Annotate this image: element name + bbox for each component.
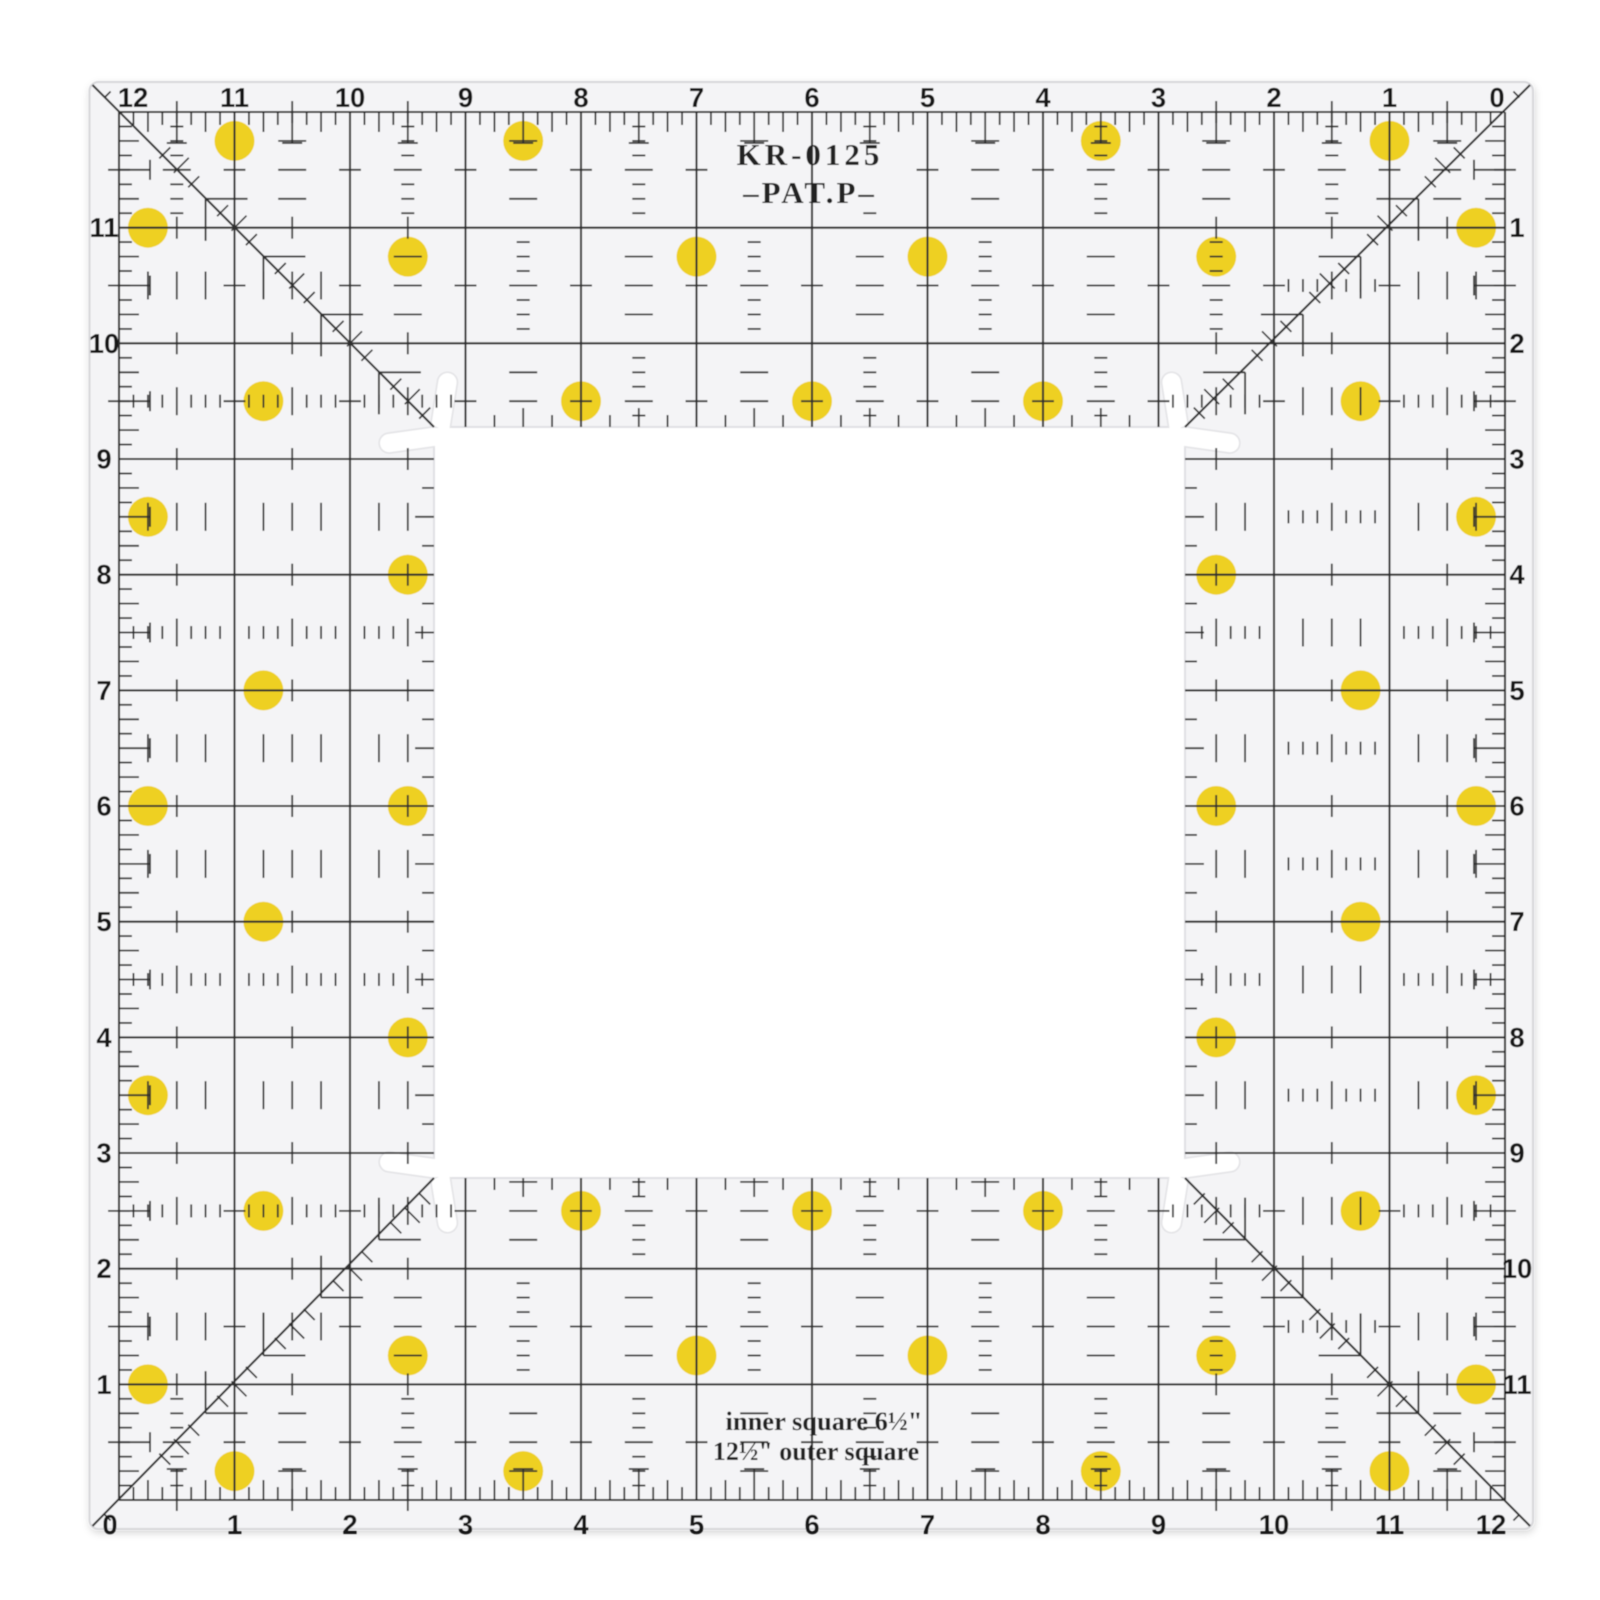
svg-text:3: 3: [96, 1138, 111, 1169]
svg-text:–PAT.P–: –PAT.P–: [742, 175, 877, 210]
svg-text:5: 5: [689, 1509, 704, 1540]
svg-text:2: 2: [1266, 82, 1281, 113]
svg-text:2: 2: [1509, 328, 1524, 359]
svg-text:8: 8: [1509, 1022, 1524, 1053]
svg-text:10: 10: [335, 82, 366, 113]
svg-text:1: 1: [1382, 82, 1397, 113]
svg-text:10: 10: [1502, 1253, 1533, 1284]
svg-text:9: 9: [1151, 1509, 1166, 1540]
svg-text:9: 9: [458, 82, 473, 113]
svg-text:4: 4: [96, 1022, 112, 1053]
svg-text:11: 11: [1375, 1509, 1404, 1540]
svg-text:2: 2: [96, 1253, 111, 1284]
svg-text:1: 1: [1509, 212, 1524, 243]
svg-text:6: 6: [804, 1509, 819, 1540]
svg-text:6: 6: [804, 82, 819, 113]
svg-text:7: 7: [1509, 906, 1524, 937]
svg-text:10: 10: [1259, 1509, 1290, 1540]
svg-text:11: 11: [1502, 1369, 1531, 1400]
svg-text:3: 3: [1151, 82, 1166, 113]
svg-text:7: 7: [689, 82, 704, 113]
svg-text:4: 4: [1509, 559, 1525, 590]
svg-text:3: 3: [458, 1509, 473, 1540]
svg-text:11: 11: [220, 82, 249, 113]
svg-text:KR-0125: KR-0125: [737, 137, 884, 172]
svg-text:8: 8: [573, 82, 588, 113]
svg-text:6: 6: [96, 791, 111, 822]
svg-text:4: 4: [573, 1509, 589, 1540]
svg-text:7: 7: [920, 1509, 935, 1540]
svg-text:1: 1: [96, 1369, 111, 1400]
svg-text:12: 12: [118, 82, 149, 113]
svg-text:2: 2: [342, 1509, 357, 1540]
svg-text:7: 7: [96, 675, 111, 706]
svg-text:5: 5: [920, 82, 935, 113]
svg-text:0: 0: [102, 1509, 117, 1540]
svg-text:4: 4: [1035, 82, 1051, 113]
svg-text:inner square 6½": inner square 6½": [725, 1406, 922, 1436]
svg-text:11: 11: [89, 212, 118, 243]
svg-text:6: 6: [1509, 791, 1524, 822]
svg-text:0: 0: [1489, 82, 1504, 113]
svg-text:12½" outer square: 12½" outer square: [713, 1437, 919, 1466]
svg-text:1: 1: [227, 1509, 242, 1540]
svg-text:5: 5: [1509, 675, 1524, 706]
svg-text:8: 8: [1035, 1509, 1050, 1540]
svg-text:10: 10: [89, 328, 120, 359]
svg-text:5: 5: [96, 906, 111, 937]
svg-text:3: 3: [1509, 444, 1524, 475]
svg-text:8: 8: [96, 559, 111, 590]
svg-text:9: 9: [96, 444, 111, 475]
svg-text:12: 12: [1476, 1509, 1507, 1540]
svg-text:9: 9: [1509, 1138, 1524, 1169]
